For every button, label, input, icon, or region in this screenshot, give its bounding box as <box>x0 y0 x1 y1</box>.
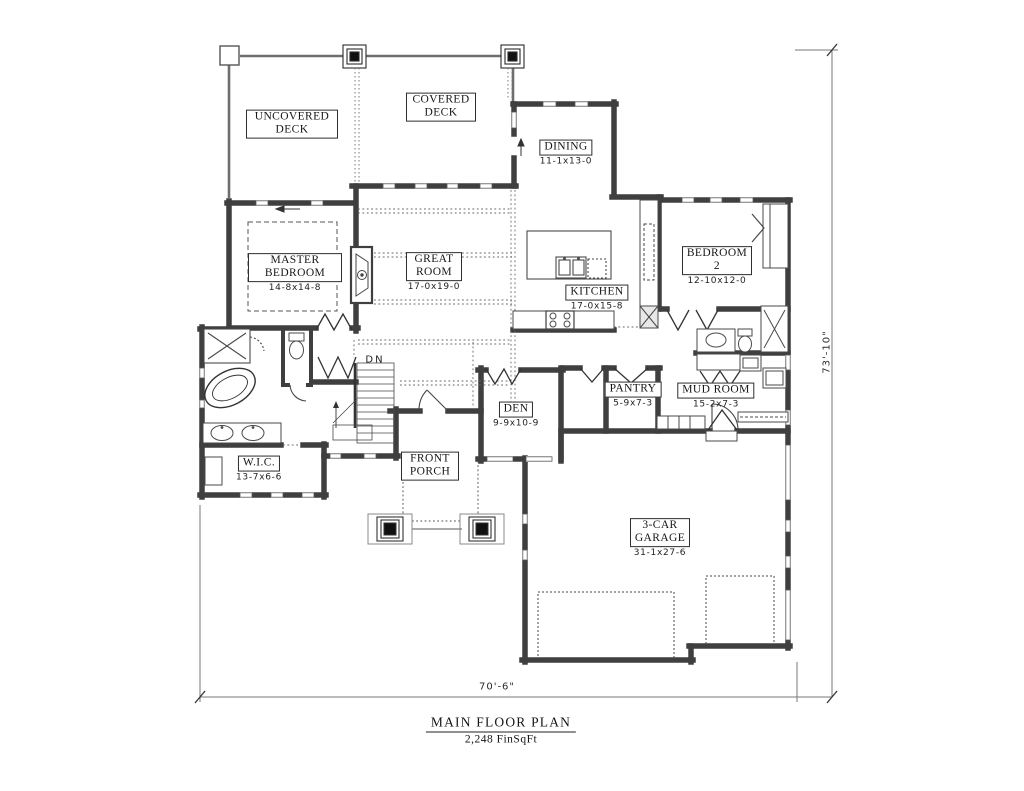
title-block: MAIN FLOOR PLAN 2,248 FinSqFt <box>426 715 576 746</box>
plan-square-footage: 2,248 FinSqFt <box>465 734 537 746</box>
room-name: KITCHEN <box>565 285 628 301</box>
room-label-front-porch: FRONT PORCH <box>401 452 459 481</box>
room-dims: 12-10x12-0 <box>688 276 747 286</box>
windows <box>200 102 790 640</box>
room-label-great-room: GREAT ROOM 17-0x19-0 <box>406 252 462 292</box>
dimension-ticks <box>195 44 837 703</box>
room-name: GREAT ROOM <box>406 252 462 281</box>
master-shower-icon <box>204 329 250 363</box>
master-vanity-icon <box>203 423 281 443</box>
room-name: COVERED DECK <box>406 93 476 122</box>
room-dims: 15-2x7-3 <box>693 399 739 409</box>
room-dims: 17-0x15-8 <box>571 301 623 311</box>
room-label-covered-deck: COVERED DECK <box>406 93 476 122</box>
dimension-lines <box>200 50 838 702</box>
room-name: DEN <box>499 402 534 418</box>
room-dims: 5-9x7-3 <box>613 398 653 408</box>
room-dims: 11-1x13-0 <box>540 156 592 166</box>
room-label-pantry: PANTRY 5-9x7-3 <box>605 382 662 409</box>
floor-plan-page: UNCOVERED DECK COVERED DECK DINING 11-1x… <box>0 0 1024 791</box>
room-dims: 9-9x10-9 <box>493 418 539 428</box>
room-name: MASTER BEDROOM <box>248 253 342 282</box>
room-dims: 14-8x14-8 <box>269 283 321 293</box>
fireplace-icon <box>351 247 372 303</box>
plan-title: MAIN FLOOR PLAN <box>426 715 576 733</box>
stairs-dn-label: DN <box>365 355 384 366</box>
room-name: DINING <box>539 140 592 156</box>
room-label-uncovered-deck: UNCOVERED DECK <box>246 110 338 139</box>
room-label-bedroom-2: BEDROOM 2 12-10x12-0 <box>684 246 750 286</box>
kitchen-range-icon <box>513 311 614 329</box>
room-label-garage: 3-CAR GARAGE 31-1x27-6 <box>630 518 690 558</box>
room-label-master-bedroom: MASTER BEDROOM 14-8x14-8 <box>248 253 342 293</box>
room-dims: 17-0x19-0 <box>408 282 460 292</box>
room-name: 3-CAR GARAGE <box>630 518 690 547</box>
room-name: UNCOVERED DECK <box>246 110 338 139</box>
room-dims: 31-1x27-6 <box>634 548 686 558</box>
width-dimension-text: 70'-6" <box>479 682 515 693</box>
room-name: W.I.C. <box>238 456 280 472</box>
wic-shelf <box>205 457 222 485</box>
room-name: MUD ROOM <box>677 383 754 399</box>
room-name: BEDROOM 2 <box>682 246 752 275</box>
hall-bath-fixtures <box>697 306 788 352</box>
room-name: FRONT PORCH <box>401 452 459 481</box>
kitchen-island-icon <box>527 231 611 279</box>
height-dimension-text: 73'-10" <box>822 330 833 373</box>
room-label-dining: DINING 11-1x13-0 <box>539 140 592 167</box>
room-label-den: DEN 9-9x10-9 <box>493 402 539 429</box>
master-toilet-icon <box>289 333 304 359</box>
master-tub-icon <box>198 360 262 415</box>
room-label-wic: W.I.C. 13-7x6-6 <box>236 456 282 483</box>
room-name: PANTRY <box>605 382 662 398</box>
stairs-icon <box>333 363 394 443</box>
room-label-kitchen: KITCHEN 17-0x15-8 <box>565 285 628 312</box>
floor-plan-drawing <box>0 0 1024 791</box>
room-dims: 13-7x6-6 <box>236 472 282 482</box>
kitchen-tall-cabinets <box>640 200 658 328</box>
deck-roof-dotted-lines <box>355 68 512 182</box>
room-label-mud-room: MUD ROOM 15-2x7-3 <box>677 383 754 410</box>
bedroom2-closet <box>752 204 788 268</box>
stairs-arrow <box>333 401 339 408</box>
